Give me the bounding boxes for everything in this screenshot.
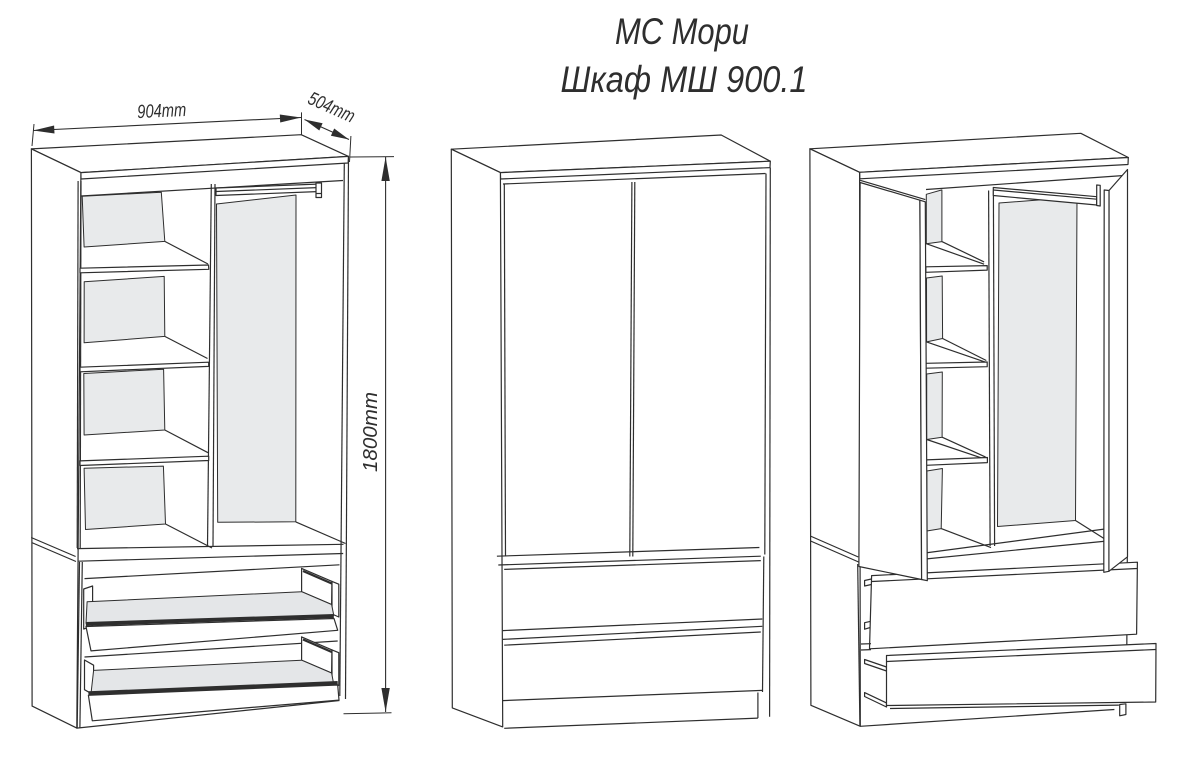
svg-text:МС Мори: МС Мори: [615, 11, 749, 52]
svg-text:904mm: 904mm: [137, 100, 187, 123]
svg-text:1800mm: 1800mm: [360, 392, 382, 472]
svg-text:Шкаф МШ 900.1: Шкаф МШ 900.1: [561, 59, 808, 100]
